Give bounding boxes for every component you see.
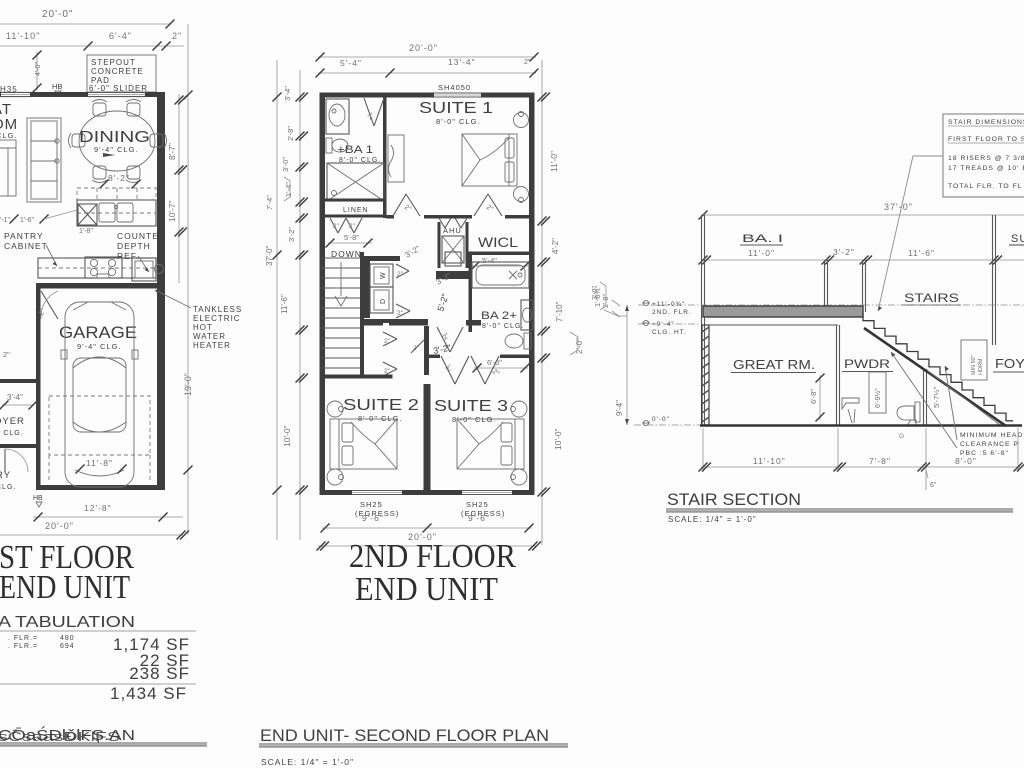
svg-text:11'-6": 11'-6" — [908, 248, 935, 258]
svg-text:2": 2" — [349, 223, 356, 230]
svg-text:PANTRY: PANTRY — [4, 231, 44, 241]
svg-text:TANKLESS: TANKLESS — [193, 305, 242, 314]
svg-text:REF.: REF. — [117, 251, 139, 261]
svg-text:480: 480 — [60, 635, 75, 642]
svg-text:STAIR DIMENSIONS: STAIR DIMENSIONS — [948, 119, 1024, 126]
svg-text:CONCRETE: CONCRETE — [91, 67, 144, 76]
svg-text:SH25: SH25 — [466, 500, 489, 509]
svg-text:FIRST FLOOR TO S: FIRST FLOOR TO S — [948, 136, 1024, 143]
svg-text:1'-8¾": 1'-8¾" — [593, 285, 602, 307]
svg-text:W: W — [380, 272, 387, 279]
svg-text:A TABULATION: A TABULATION — [0, 614, 135, 631]
svg-text:BA. I: BA. I — [742, 233, 783, 245]
svg-text:3'-4": 3'-4" — [283, 86, 292, 101]
svg-text:2": 2" — [172, 31, 182, 41]
svg-text:19'-0": 19'-0" — [183, 373, 193, 396]
svg-text:OYER: OYER — [0, 416, 25, 427]
svg-text:8'-0": 8'-0" — [955, 456, 977, 466]
svg-text:MINIMUM HEAD: MINIMUM HEAD — [960, 432, 1023, 439]
svg-text:3'-0": 3'-0" — [281, 157, 290, 172]
svg-text:+9'-4": +9'-4" — [652, 321, 675, 328]
svg-text:37'-0": 37'-0" — [265, 245, 274, 266]
svg-text:COUNTER: COUNTER — [117, 231, 166, 241]
svg-text:2": 2" — [403, 204, 413, 214]
svg-text:SUITE 1: SUITE 1 — [419, 100, 493, 117]
svg-text:10'-0": 10'-0" — [282, 425, 292, 447]
svg-text:+BA 1: +BA 1 — [337, 144, 373, 156]
svg-text:6": 6" — [930, 482, 937, 489]
svg-text:3'-2": 3'-2" — [404, 244, 422, 260]
svg-text:7'-8": 7'-8" — [869, 456, 891, 466]
svg-text:SU: SU — [1011, 233, 1024, 245]
svg-text:5'-4": 5'-4" — [482, 256, 497, 265]
svg-text:BA 2+: BA 2+ — [481, 310, 517, 322]
svg-text:9'-4": 9'-4" — [615, 400, 624, 416]
svg-text:1,434 SF: 1,434 SF — [110, 684, 187, 703]
svg-text:END UNIT: END UNIT — [0, 569, 130, 606]
svg-text:+11'-0¾": +11'-0¾" — [652, 301, 685, 308]
svg-text:238 SF: 238 SF — [129, 664, 190, 683]
svg-text:10'-7": 10'-7" — [167, 200, 177, 222]
svg-text:4'-2": 4'-2" — [551, 238, 560, 254]
svg-text:2": 2" — [3, 350, 10, 359]
svg-text:13'-4": 13'-4" — [448, 57, 476, 67]
svg-text:SUITE 3: SUITE 3 — [434, 398, 508, 415]
svg-text:2": 2" — [397, 271, 404, 278]
svg-text:5'-7½": 5'-7½" — [932, 386, 941, 408]
svg-text:2'-8": 2'-8" — [286, 126, 295, 141]
svg-text:2ND FLOOR: 2ND FLOOR — [349, 538, 516, 575]
svg-text:CABINET: CABINET — [4, 241, 48, 251]
svg-text:ELECTRIC: ELECTRIC — [193, 314, 241, 323]
svg-text:HB: HB — [52, 82, 62, 91]
svg-text:CLEARANCE P: CLEARANCE P — [960, 441, 1019, 448]
svg-text:D: D — [380, 299, 387, 304]
svg-text:5'-2": 5'-2" — [435, 292, 450, 312]
svg-text:20'-0": 20'-0" — [409, 43, 438, 53]
svg-text:7'-4": 7'-4" — [265, 195, 274, 210]
svg-text:LINEN: LINEN — [343, 207, 369, 214]
svg-text:2'-8": 2'-8" — [603, 294, 610, 308]
svg-text:2": 2" — [384, 338, 391, 345]
svg-text:6'-8": 6'-8" — [809, 389, 818, 404]
svg-text:PWDR: PWDR — [844, 357, 890, 371]
svg-text:SH25: SH25 — [360, 500, 383, 509]
svg-text:9'-6": 9'-6" — [362, 513, 384, 523]
svg-text:DINING: DINING — [79, 129, 150, 146]
svg-text:STAIR SECTION: STAIR SECTION — [667, 490, 801, 509]
svg-text:6'-0" SLIDER: 6'-0" SLIDER — [89, 84, 148, 93]
svg-text:8'-0" CLG.: 8'-0" CLG. — [358, 414, 403, 423]
svg-text:8'-0" CLG.: 8'-0" CLG. — [452, 415, 497, 424]
svg-text:5'-8": 5'-8" — [344, 233, 359, 242]
svg-text:2": 2" — [333, 223, 340, 230]
svg-text:3'-2": 3'-2" — [833, 247, 855, 257]
svg-text:8'-2": 8'-2" — [108, 173, 130, 183]
svg-text:1'-8": 1'-8" — [79, 228, 93, 235]
svg-text:2ND. FLR.: 2ND. FLR. — [652, 309, 692, 316]
svg-text:8'-0" CLG.: 8'-0" CLG. — [436, 117, 481, 126]
svg-text:6'-9½": 6'-9½" — [874, 388, 882, 408]
svg-text:17 TREADS @ 10' E: 17 TREADS @ 10' E — [948, 165, 1024, 172]
svg-text:2": 2" — [397, 310, 404, 317]
svg-text:1'-4": 1'-4" — [284, 182, 293, 197]
svg-text:END UNIT: END UNIT — [355, 571, 498, 608]
svg-text:sĈsaasĐKlFS: sĈsaasĐKlFS — [0, 729, 120, 744]
svg-text:3'-2": 3'-2" — [287, 227, 296, 242]
svg-text:0'-0": 0'-0" — [652, 416, 670, 423]
svg-text:4'-0": 4'-0" — [35, 62, 42, 76]
svg-text:2": 2" — [367, 112, 377, 122]
svg-text:WATER: WATER — [193, 332, 226, 341]
svg-text:GARAGE: GARAGE — [59, 323, 137, 342]
svg-text:11'-6": 11'-6" — [280, 294, 289, 314]
svg-text:4" CLG.: 4" CLG. — [0, 430, 24, 437]
svg-text:G: G — [899, 433, 904, 440]
svg-text:20'-0": 20'-0" — [45, 521, 74, 531]
svg-text:12'-8": 12'-8" — [84, 503, 112, 513]
svg-text:SCALE: 1/4" = 1'-0": SCALE: 1/4" = 1'-0" — [261, 757, 354, 767]
svg-text:5'-4": 5'-4" — [340, 58, 362, 68]
svg-text:HEATER: HEATER — [193, 341, 231, 350]
svg-text:2": 2" — [445, 364, 455, 374]
svg-text:CLG.: CLG. — [0, 131, 18, 140]
svg-text:CLG.: CLG. — [0, 484, 16, 491]
svg-text:9'-4" CLG.: 9'-4" CLG. — [77, 342, 122, 351]
svg-text:2": 2" — [485, 204, 495, 214]
svg-text:HDRM: HDRM — [978, 358, 984, 375]
svg-text:GREAT RM.: GREAT RM. — [733, 357, 815, 372]
svg-text:HOT: HOT — [193, 323, 213, 332]
svg-text:37'-0": 37'-0" — [884, 202, 913, 212]
svg-text:2": 2" — [413, 345, 420, 352]
svg-text:END UNIT- SECOND FLOOR PLAN: END UNIT- SECOND FLOOR PLAN — [260, 726, 549, 745]
svg-text:8'-7": 8'-7" — [167, 143, 177, 160]
svg-text:STAIRS: STAIRS — [904, 291, 959, 305]
svg-text:6'-4": 6'-4" — [109, 31, 132, 41]
svg-text:11'-10": 11'-10" — [6, 31, 40, 41]
svg-text:11'-8": 11'-8" — [86, 458, 113, 468]
svg-text:TOTAL FLR. TO FL: TOTAL FLR. TO FL — [948, 183, 1023, 190]
svg-text:'-1": '-1" — [0, 217, 11, 224]
svg-text:11'-0": 11'-0" — [748, 248, 775, 258]
svg-text:STEPOUT: STEPOUT — [91, 58, 136, 67]
svg-text:3'-4": 3'-4" — [7, 393, 23, 402]
svg-text:DEPTH: DEPTH — [117, 241, 151, 251]
svg-text:SCALE: 1/4" = 1'-0": SCALE: 1/4" = 1'-0" — [668, 515, 757, 524]
svg-text:11'-0": 11'-0" — [549, 151, 559, 172]
svg-text:FOY: FOY — [995, 356, 1024, 371]
svg-text:1'-6": 1'-6" — [20, 217, 34, 224]
svg-text:. FLR.=: . FLR.= — [8, 643, 38, 650]
svg-text:11'-10": 11'-10" — [753, 456, 786, 466]
svg-text:7'-10": 7'-10" — [555, 301, 564, 322]
svg-text:9'-6": 9'-6" — [468, 513, 490, 523]
svg-text:18 RISERS @ 7 3/8: 18 RISERS @ 7 3/8 — [948, 155, 1024, 162]
svg-text:8'-0" CLG.: 8'-0" CLG. — [482, 323, 524, 330]
svg-text:SUITE 2: SUITE 2 — [343, 397, 419, 414]
svg-text:2'-0": 2'-0" — [575, 338, 584, 354]
svg-text:WICL: WICL — [478, 234, 518, 250]
svg-text:RY: RY — [0, 470, 11, 481]
svg-text:CLG. HT.: CLG. HT. — [652, 329, 687, 336]
svg-text:SH4050: SH4050 — [438, 83, 471, 92]
svg-text:2": 2" — [384, 368, 391, 375]
svg-text:2": 2" — [524, 59, 531, 66]
svg-text:9'-4" CLG.: 9'-4" CLG. — [94, 145, 139, 154]
svg-text:694: 694 — [60, 643, 75, 650]
svg-text:. FLR.=: . FLR.= — [8, 635, 38, 642]
svg-text:MIN 90": MIN 90" — [971, 355, 977, 375]
svg-text:10'-0": 10'-0" — [553, 428, 563, 450]
svg-text:HB: HB — [33, 495, 43, 502]
svg-text:20'-0": 20'-0" — [42, 9, 73, 20]
